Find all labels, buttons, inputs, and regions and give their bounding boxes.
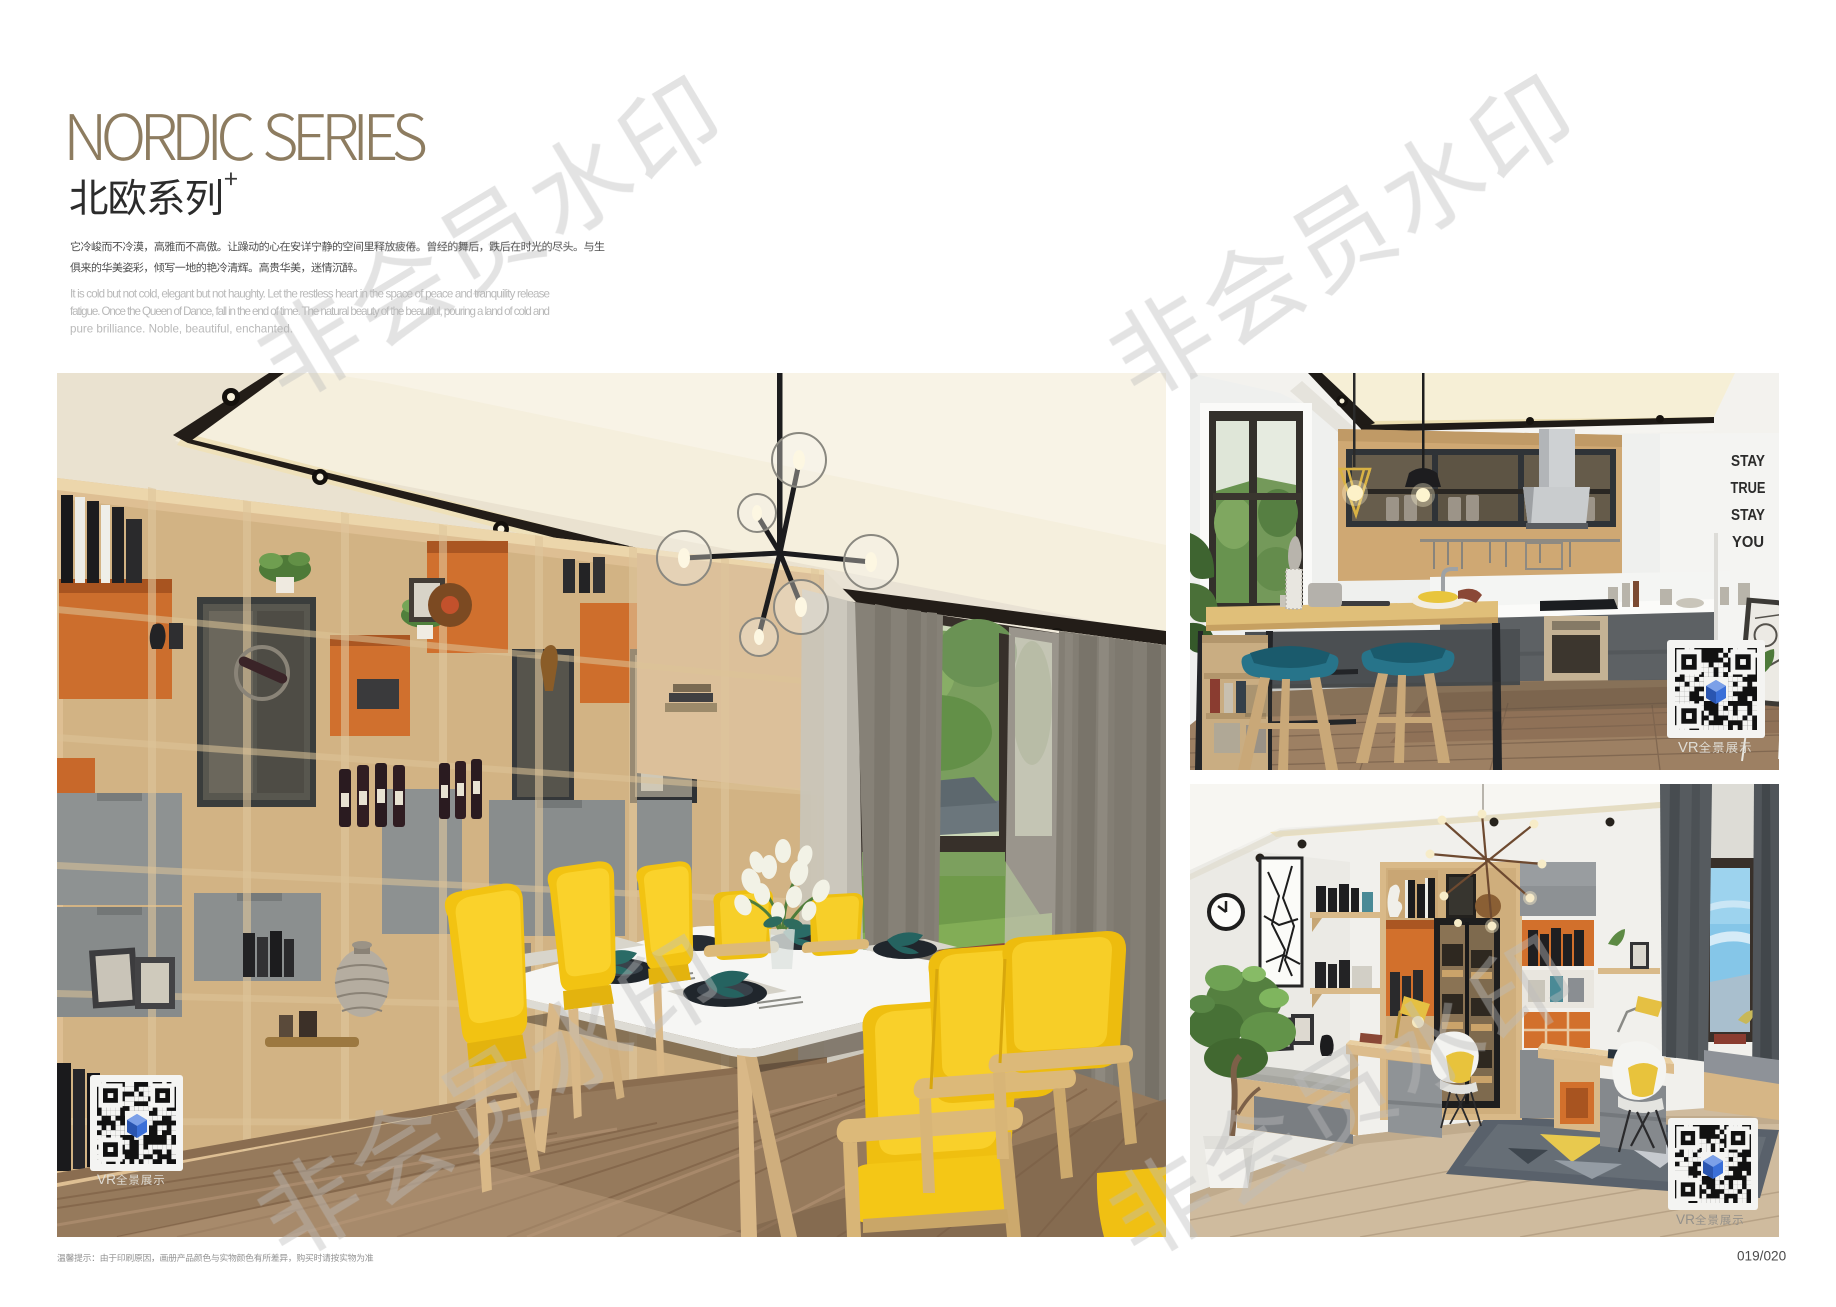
svg-text:VR: VR bbox=[1676, 1212, 1695, 1227]
svg-text:VR: VR bbox=[1678, 740, 1699, 756]
svg-text:pure brilliance. Noble, beauti: pure brilliance. Noble, beautiful, encha… bbox=[70, 323, 293, 336]
svg-text:It is cold but not cold, elega: It is cold but not cold, elegant but not… bbox=[70, 288, 550, 301]
svg-text:VR: VR bbox=[97, 1172, 116, 1187]
svg-text:STAY: STAY bbox=[1731, 453, 1766, 470]
svg-text:TRUE: TRUE bbox=[1731, 480, 1766, 497]
svg-text:fatigue. Once the Queen of Dan: fatigue. Once the Queen of Dance, fall i… bbox=[70, 305, 550, 318]
svg-text:019/020: 019/020 bbox=[1737, 1249, 1787, 1264]
svg-text:STAY: STAY bbox=[1731, 507, 1766, 524]
svg-text:YOU: YOU bbox=[1732, 534, 1764, 551]
